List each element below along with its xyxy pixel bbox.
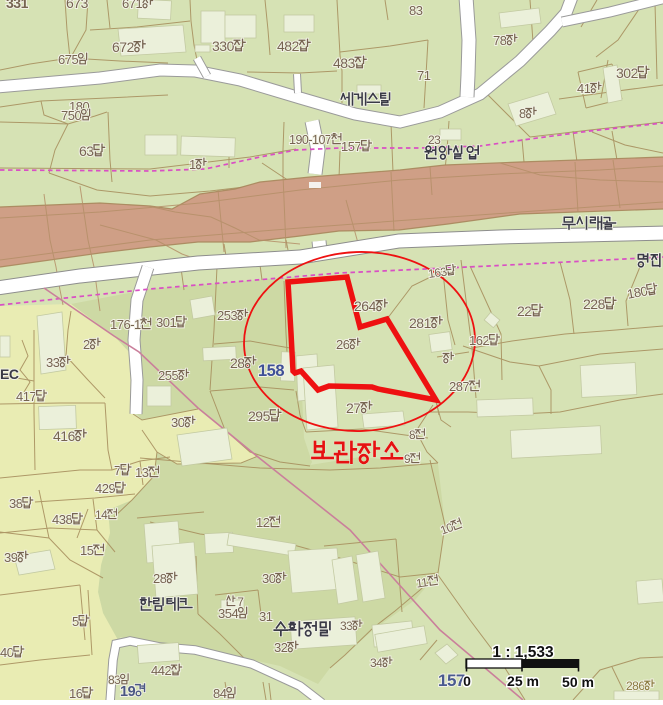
svg-text:32: 32 <box>274 640 288 655</box>
svg-text:302: 302 <box>616 65 639 81</box>
svg-text:190-107: 190-107 <box>289 133 332 147</box>
svg-text:38: 38 <box>9 496 23 511</box>
svg-text:158: 158 <box>258 362 284 380</box>
svg-text:84: 84 <box>213 686 227 700</box>
svg-text:354: 354 <box>218 606 238 621</box>
svg-text:50 m: 50 m <box>562 674 594 690</box>
svg-text:19: 19 <box>120 684 136 700</box>
svg-text:28: 28 <box>153 571 167 586</box>
svg-text:40: 40 <box>0 645 14 660</box>
svg-text:12: 12 <box>256 515 270 530</box>
svg-text:331: 331 <box>6 0 29 11</box>
svg-text:295: 295 <box>248 408 271 424</box>
svg-text:287: 287 <box>449 379 469 394</box>
svg-text:28: 28 <box>230 355 245 371</box>
svg-text:30: 30 <box>262 571 276 586</box>
svg-text:671: 671 <box>122 0 142 11</box>
svg-text:162: 162 <box>469 333 489 348</box>
svg-text:330: 330 <box>212 38 235 54</box>
svg-text:176-1: 176-1 <box>110 317 141 332</box>
svg-text:157: 157 <box>341 139 361 154</box>
svg-text:438: 438 <box>52 512 72 527</box>
svg-text:281: 281 <box>409 315 432 331</box>
svg-text:255: 255 <box>158 368 178 383</box>
svg-text:33: 33 <box>46 355 60 370</box>
svg-text:417: 417 <box>16 389 36 404</box>
svg-text:286: 286 <box>626 679 645 693</box>
svg-text:482: 482 <box>277 38 300 54</box>
svg-text:13: 13 <box>135 465 149 480</box>
svg-text:15: 15 <box>80 543 94 558</box>
svg-text:25 m: 25 m <box>507 673 539 689</box>
svg-text:483: 483 <box>333 55 356 71</box>
svg-text:83: 83 <box>409 3 423 18</box>
svg-text:31: 31 <box>259 609 273 624</box>
svg-text:0: 0 <box>463 673 471 689</box>
svg-text:416: 416 <box>53 428 76 444</box>
svg-text:26: 26 <box>336 337 350 352</box>
svg-text:750: 750 <box>61 108 81 123</box>
svg-text:16: 16 <box>69 686 83 700</box>
svg-text:39: 39 <box>4 550 18 565</box>
svg-text:228: 228 <box>583 296 606 312</box>
svg-text:442: 442 <box>151 663 171 678</box>
svg-text:301: 301 <box>156 315 176 330</box>
svg-text:41: 41 <box>577 81 591 96</box>
svg-text:675: 675 <box>58 52 78 67</box>
svg-text:157: 157 <box>438 671 465 690</box>
svg-text:71: 71 <box>417 68 431 83</box>
svg-text:253: 253 <box>217 308 237 323</box>
svg-text:EC: EC <box>0 366 19 382</box>
svg-text:63: 63 <box>79 143 94 159</box>
svg-text:672: 672 <box>112 39 135 55</box>
svg-text:429: 429 <box>95 481 115 496</box>
svg-text:78: 78 <box>493 33 507 48</box>
svg-text:30: 30 <box>171 415 185 430</box>
svg-text:264: 264 <box>354 298 377 314</box>
svg-text:673: 673 <box>66 0 89 11</box>
svg-text:27: 27 <box>346 400 361 416</box>
svg-text:22: 22 <box>517 303 532 319</box>
